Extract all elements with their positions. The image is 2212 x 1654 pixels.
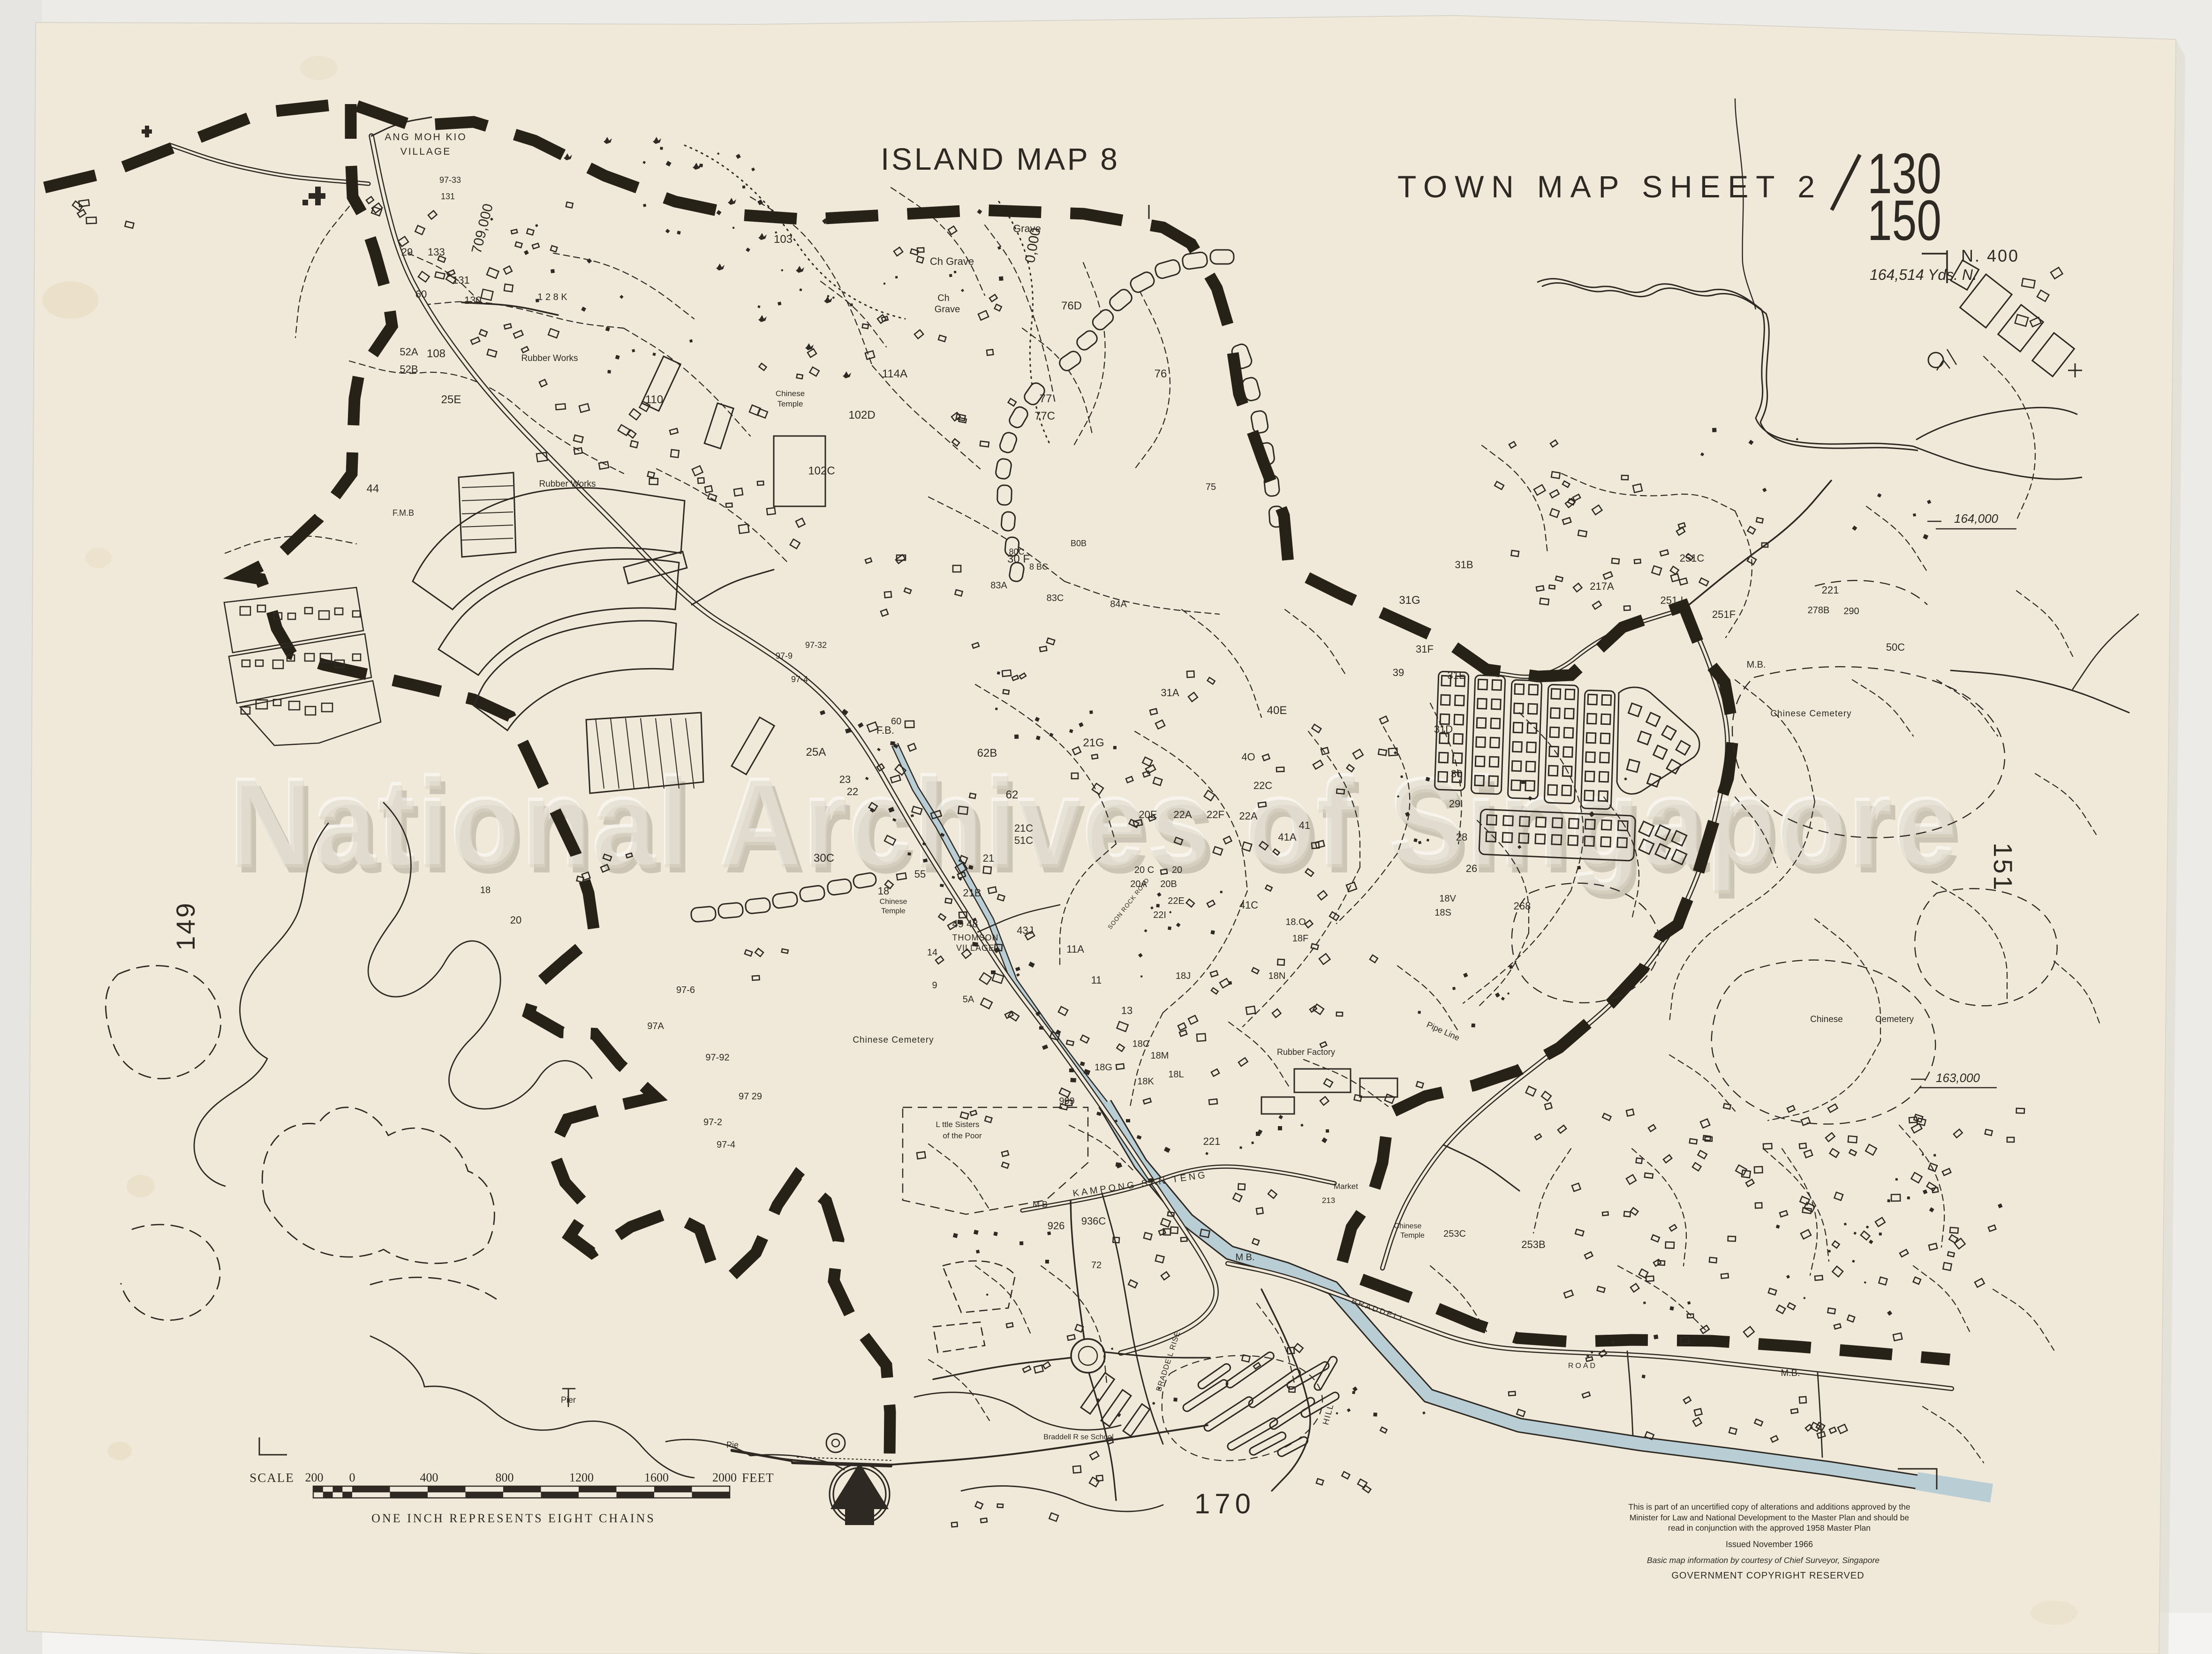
svg-text:Chinese: Chinese <box>776 389 805 398</box>
svg-text:97-4: 97-4 <box>791 675 808 684</box>
svg-text:Basic map information by court: Basic map information by courtesy of Chi… <box>1647 1556 1880 1565</box>
svg-text:31G: 31G <box>1399 594 1420 607</box>
svg-text:31E: 31E <box>1447 669 1465 681</box>
svg-text:102D: 102D <box>848 409 875 421</box>
svg-text:400: 400 <box>420 1471 438 1484</box>
svg-text:26: 26 <box>1466 863 1477 874</box>
svg-text:41A: 41A <box>1278 831 1296 843</box>
svg-text:29: 29 <box>401 246 413 258</box>
svg-text:Cemetery: Cemetery <box>1875 1015 1914 1024</box>
svg-text:11: 11 <box>1091 974 1102 986</box>
svg-text:28: 28 <box>1456 831 1467 843</box>
svg-text:N. 400: N. 400 <box>1961 246 2019 265</box>
svg-text:18M: 18M <box>1151 1051 1169 1061</box>
svg-text:M.B.: M.B. <box>1746 660 1766 670</box>
svg-text:22A: 22A <box>1239 810 1257 822</box>
svg-text:18G: 18G <box>1095 1062 1112 1073</box>
svg-text:51C: 51C <box>1014 835 1033 846</box>
svg-text:62B: 62B <box>977 747 997 759</box>
svg-text:217A: 217A <box>1590 580 1614 592</box>
svg-text:18J: 18J <box>1176 971 1191 981</box>
svg-text:9: 9 <box>932 980 937 991</box>
svg-text:110: 110 <box>645 393 663 406</box>
svg-text:18: 18 <box>480 885 491 895</box>
svg-text:44: 44 <box>367 482 379 495</box>
svg-text:VILLAGE: VILLAGE <box>400 146 452 157</box>
svg-text:0: 0 <box>349 1471 355 1484</box>
svg-text:75: 75 <box>1206 482 1216 492</box>
svg-text:Grave: Grave <box>935 304 960 315</box>
svg-text:SCALE: SCALE <box>249 1471 294 1485</box>
svg-text:THOMSON: THOMSON <box>952 933 999 942</box>
svg-text:Chinese Cemetery: Chinese Cemetery <box>853 1035 934 1045</box>
svg-text:149: 149 <box>171 901 200 950</box>
svg-text:M B: M B <box>1033 1200 1048 1209</box>
svg-text:18S: 18S <box>1434 908 1451 918</box>
svg-text:Pier: Pier <box>561 1395 576 1405</box>
svg-text:of the Poor: of the Poor <box>943 1131 982 1140</box>
svg-text:Rubber Factory: Rubber Factory <box>1277 1047 1335 1057</box>
svg-text:40E: 40E <box>1267 704 1287 717</box>
svg-text:22C: 22C <box>1253 780 1272 791</box>
svg-text:F.M.B: F.M.B <box>393 508 414 518</box>
svg-text:GOVERNMENT COPYRIGHT RESERVED: GOVERNMENT COPYRIGHT RESERVED <box>1671 1571 1864 1581</box>
svg-text:Rubber Works: Rubber Works <box>521 353 578 363</box>
svg-text:13: 13 <box>1121 1005 1132 1016</box>
svg-text:5A: 5A <box>963 994 974 1005</box>
svg-text:22A: 22A <box>1173 809 1192 820</box>
svg-text:This is part of an uncertified: This is part of an uncertified copy of a… <box>1628 1502 1910 1511</box>
svg-text:20: 20 <box>510 914 521 926</box>
svg-text:21G: 21G <box>1083 737 1104 749</box>
svg-text:41: 41 <box>1299 819 1310 831</box>
svg-text:Braddell R se School: Braddell R se School <box>1043 1433 1113 1441</box>
svg-text:18K: 18K <box>1137 1076 1154 1087</box>
svg-text:18V: 18V <box>1439 894 1456 904</box>
svg-text:97-92: 97-92 <box>705 1053 729 1063</box>
svg-text:21B: 21B <box>963 887 981 899</box>
svg-text:18L: 18L <box>1168 1069 1184 1080</box>
svg-text:18C: 18C <box>1132 1039 1150 1049</box>
svg-text:76D: 76D <box>1061 300 1082 312</box>
svg-text:Temple: Temple <box>881 907 906 915</box>
svg-text:253B: 253B <box>1521 1239 1545 1250</box>
svg-text:163,000: 163,000 <box>1936 1071 1980 1085</box>
svg-text:84A: 84A <box>1110 599 1127 609</box>
svg-text:Issued November 1966: Issued November 1966 <box>1726 1540 1813 1549</box>
svg-text:20E: 20E <box>1139 809 1157 820</box>
svg-text:18: 18 <box>878 885 889 897</box>
svg-text:131: 131 <box>453 274 470 286</box>
svg-text:999: 999 <box>1059 1096 1074 1106</box>
svg-text:8 BC: 8 BC <box>1029 562 1048 571</box>
svg-text:72: 72 <box>1091 1260 1102 1271</box>
svg-text:1 2 8 K: 1 2 8 K <box>537 292 567 302</box>
svg-text:Chinese: Chinese <box>1394 1222 1422 1230</box>
svg-text:41C: 41C <box>1239 899 1258 911</box>
svg-text:97-2: 97-2 <box>703 1117 722 1128</box>
svg-text:164,514 Yds. N.: 164,514 Yds. N. <box>1870 266 1977 283</box>
svg-text:221: 221 <box>1203 1135 1221 1147</box>
svg-text:M B.: M B. <box>1235 1252 1254 1263</box>
svg-text:31B: 31B <box>1455 559 1473 571</box>
svg-text:Temple: Temple <box>1400 1232 1425 1240</box>
svg-text:21: 21 <box>983 852 994 864</box>
svg-text:60: 60 <box>891 716 901 727</box>
svg-text:ISLAND MAP 8: ISLAND MAP 8 <box>881 142 1117 176</box>
svg-text:151: 151 <box>1988 842 2018 892</box>
svg-text:50C: 50C <box>1886 641 1905 653</box>
svg-text:77C: 77C <box>1034 410 1055 422</box>
svg-text:278B: 278B <box>1808 605 1830 616</box>
svg-text:60: 60 <box>415 288 427 300</box>
svg-text:ROAD: ROAD <box>1568 1362 1597 1370</box>
svg-text:114A: 114A <box>882 368 907 380</box>
svg-text:133: 133 <box>428 246 445 258</box>
svg-text:251C: 251C <box>1680 552 1705 564</box>
svg-text:97 29: 97 29 <box>739 1091 762 1102</box>
svg-text:ONE INCH REPRESENTS EIGHT CHAI: ONE INCH REPRESENTS EIGHT CHAINS <box>371 1511 656 1525</box>
svg-text:18N: 18N <box>1268 971 1286 981</box>
svg-text:97-33: 97-33 <box>439 175 461 185</box>
svg-text:76: 76 <box>1155 368 1167 380</box>
svg-text:ANG MOH KIO: ANG MOH KIO <box>385 132 467 143</box>
svg-text:221: 221 <box>1822 584 1839 596</box>
svg-text:800: 800 <box>496 1471 514 1484</box>
svg-text:39: 39 <box>1393 667 1404 678</box>
svg-text:FEET: FEET <box>742 1471 774 1485</box>
svg-text:103: 103 <box>774 233 793 246</box>
svg-text:Chinese: Chinese <box>880 898 907 906</box>
svg-text:Chinese Cemetery: Chinese Cemetery <box>1770 709 1851 719</box>
svg-text:164,000: 164,000 <box>1954 511 1999 526</box>
svg-text:1600: 1600 <box>644 1471 669 1484</box>
svg-text:25E: 25E <box>441 393 461 406</box>
svg-text:29: 29 <box>1449 798 1460 810</box>
svg-text:Minister for Law and National: Minister for Law and National Developmen… <box>1630 1513 1909 1522</box>
svg-text:150: 150 <box>1867 188 1941 252</box>
svg-text:M.B.: M.B. <box>1781 1368 1800 1378</box>
svg-text:25A: 25A <box>806 746 826 759</box>
svg-text:102C: 102C <box>808 465 835 477</box>
svg-text:926: 926 <box>1048 1220 1065 1232</box>
svg-text:52B: 52B <box>400 363 418 375</box>
svg-text:1200: 1200 <box>569 1471 594 1484</box>
svg-text:20 C: 20 C <box>1134 865 1154 875</box>
svg-text:131: 131 <box>441 192 455 201</box>
svg-text:11A: 11A <box>1066 943 1084 955</box>
svg-text:Rubber Works: Rubber Works <box>539 479 596 489</box>
svg-text:30C: 30C <box>814 852 834 865</box>
svg-text:2000: 2000 <box>712 1471 737 1484</box>
svg-text:97-9: 97-9 <box>776 651 793 661</box>
svg-text:21C: 21C <box>1014 822 1033 834</box>
svg-text:43J: 43J <box>1017 925 1033 936</box>
svg-text:97-6: 97-6 <box>676 985 695 995</box>
svg-text:49 48: 49 48 <box>952 918 978 930</box>
svg-text:VILLAGE: VILLAGE <box>956 943 995 953</box>
svg-text:20B: 20B <box>1160 879 1177 889</box>
svg-text:Grave: Grave <box>1013 223 1041 234</box>
svg-text:251F: 251F <box>1712 609 1736 620</box>
svg-text:55: 55 <box>914 868 926 880</box>
svg-text:Market: Market <box>1334 1182 1358 1191</box>
svg-text:97-32: 97-32 <box>805 640 827 650</box>
svg-text:290: 290 <box>1843 606 1859 616</box>
svg-text:Ch: Ch <box>937 293 950 303</box>
svg-text:Pie: Pie <box>726 1440 739 1450</box>
svg-text:251 I: 251 I <box>1661 594 1684 606</box>
svg-text:14: 14 <box>927 947 937 958</box>
svg-text:83A: 83A <box>990 580 1007 591</box>
svg-text:936C: 936C <box>1081 1215 1106 1227</box>
svg-text:31F: 31F <box>1416 643 1434 655</box>
svg-text:170: 170 <box>1194 1488 1255 1519</box>
svg-text:Ch Grave: Ch Grave <box>930 256 974 267</box>
svg-text:22: 22 <box>847 786 858 797</box>
svg-text:18F: 18F <box>1292 933 1308 944</box>
svg-text:80C: 80C <box>1009 547 1024 556</box>
svg-text:4O: 4O <box>1241 751 1255 763</box>
svg-text:20: 20 <box>1172 865 1182 875</box>
svg-text:read in conjunction with the a: read in conjunction with the approved 19… <box>1668 1523 1871 1533</box>
svg-text:22E: 22E <box>1168 896 1185 906</box>
svg-text:200: 200 <box>305 1471 324 1484</box>
svg-text:22F: 22F <box>1207 809 1224 820</box>
svg-text:130: 130 <box>464 294 482 306</box>
svg-text:22I: 22I <box>1153 910 1166 920</box>
svg-text:B0B: B0B <box>1071 539 1087 548</box>
svg-text:213: 213 <box>1322 1196 1335 1205</box>
svg-text:52A: 52A <box>400 346 418 358</box>
svg-text:18.O: 18.O <box>1285 917 1306 927</box>
svg-text:62: 62 <box>1006 789 1019 801</box>
svg-text:31A: 31A <box>1161 687 1179 699</box>
svg-text:77: 77 <box>1040 392 1052 405</box>
svg-text:31D: 31D <box>1434 723 1453 735</box>
svg-text:108: 108 <box>427 347 445 360</box>
svg-text:Chinese: Chinese <box>1810 1015 1843 1024</box>
svg-text:97A: 97A <box>647 1021 664 1031</box>
svg-text:83C: 83C <box>1047 593 1064 603</box>
svg-text:23: 23 <box>839 774 851 785</box>
svg-text:Temple: Temple <box>778 399 803 408</box>
svg-text:L ttle Sisters: L ttle Sisters <box>936 1120 980 1129</box>
svg-text:268: 268 <box>1514 900 1531 912</box>
svg-text:97-4: 97-4 <box>717 1140 735 1150</box>
svg-text:30: 30 <box>1451 768 1462 780</box>
svg-text:253C: 253C <box>1443 1229 1466 1239</box>
